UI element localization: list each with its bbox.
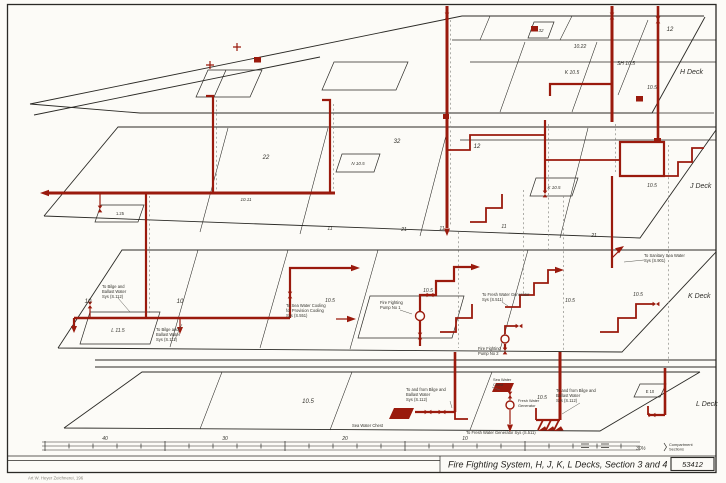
- room-number: 10.5: [302, 399, 314, 405]
- room-number: 10.5: [647, 85, 657, 91]
- room-number: K 10.5: [547, 185, 561, 190]
- pump-2-label: Pump No 2: [478, 351, 499, 356]
- fresh-water-generator-label: Generator: [518, 403, 536, 408]
- room-number: 10.5: [633, 292, 643, 298]
- scale-number: 30: [222, 436, 228, 442]
- credit-note: Art W. Heyer Zeichnerei, 196: [28, 476, 84, 481]
- bilge-ballast-note: Sys (S.112): [156, 337, 178, 342]
- deck-h-label: H Deck: [680, 69, 703, 76]
- room-number: 21: [590, 233, 597, 239]
- fire-fighting-system-drawing: H Deck J Deck K Deck L Deck 12 10.22 K 1…: [0, 0, 726, 483]
- room-number: 32: [394, 139, 401, 145]
- drawing-number: 53412: [682, 460, 704, 469]
- fresh-water-generator-note: Sys (S.511): [482, 297, 504, 302]
- room-number: 10.5: [565, 298, 575, 304]
- room-number: 10.5: [423, 288, 433, 294]
- fresh-water-generator-note: To Fresh Water Generator Sys (S.511): [466, 430, 536, 435]
- deck-l-label: L Deck: [696, 401, 718, 408]
- pump-1-label: Pump No 1: [380, 305, 401, 310]
- deck-k-label: K Deck: [688, 293, 711, 300]
- drawing-canvas: H Deck J Deck K Deck L Deck 12 10.22 K 1…: [0, 0, 726, 483]
- room-number: E 10: [646, 389, 655, 394]
- room-number: N 10.5: [351, 161, 365, 166]
- room-number: K 10.5: [565, 70, 580, 76]
- scale-number: 20: [341, 436, 348, 442]
- title-block: Fire Fighting System, H, J, K, L Decks, …: [448, 460, 704, 470]
- drawing-title: Fire Fighting System, H, J, K, L Decks, …: [448, 460, 667, 470]
- room-number: L 11.5: [111, 328, 125, 334]
- pump-2-icon: [501, 335, 509, 343]
- room-number: 12: [667, 27, 674, 33]
- pump-1-icon: [416, 312, 425, 321]
- room-number: 10.5: [647, 183, 657, 189]
- bilge-ballast-note: Sys (S.112): [406, 397, 428, 402]
- paper-background: [0, 0, 726, 483]
- deck-j-label: J Deck: [689, 183, 712, 190]
- sanitary-sea-water-note: Sys (S.901): [644, 258, 666, 263]
- room-number: 21: [400, 227, 407, 233]
- room-number: 10: [85, 299, 92, 305]
- scale-number: 10: [462, 436, 468, 442]
- room-number: 11: [327, 226, 332, 232]
- room-number: 1.25: [116, 211, 125, 216]
- bilge-ballast-note: Sys (S.112): [102, 294, 124, 299]
- fresh-water-generator-icon: [506, 401, 514, 409]
- room-number: 12: [474, 144, 481, 150]
- provision-cooling-note: Sys (S.551): [286, 313, 308, 318]
- room-number: 10: [177, 299, 184, 305]
- sea-water-chest-label: Sea Water Chest: [352, 423, 384, 428]
- room-number: 10.5: [325, 298, 335, 304]
- room-number: 32: [538, 28, 544, 33]
- pipe-size-label: 10.11: [241, 197, 252, 202]
- bilge-ballast-note: Sys (S.112): [556, 398, 578, 403]
- sea-water-chest-label: Chest: [493, 382, 504, 387]
- scale-number: 40: [102, 436, 108, 442]
- room-number: SH 10.5: [617, 61, 635, 67]
- room-number: 10.22: [574, 44, 587, 50]
- scale-fraction: 30½: [636, 445, 647, 452]
- room-number: 22: [262, 155, 270, 161]
- scale-caption: Sections: [669, 447, 684, 452]
- room-number: 11: [439, 226, 444, 232]
- room-number: 11: [501, 224, 506, 230]
